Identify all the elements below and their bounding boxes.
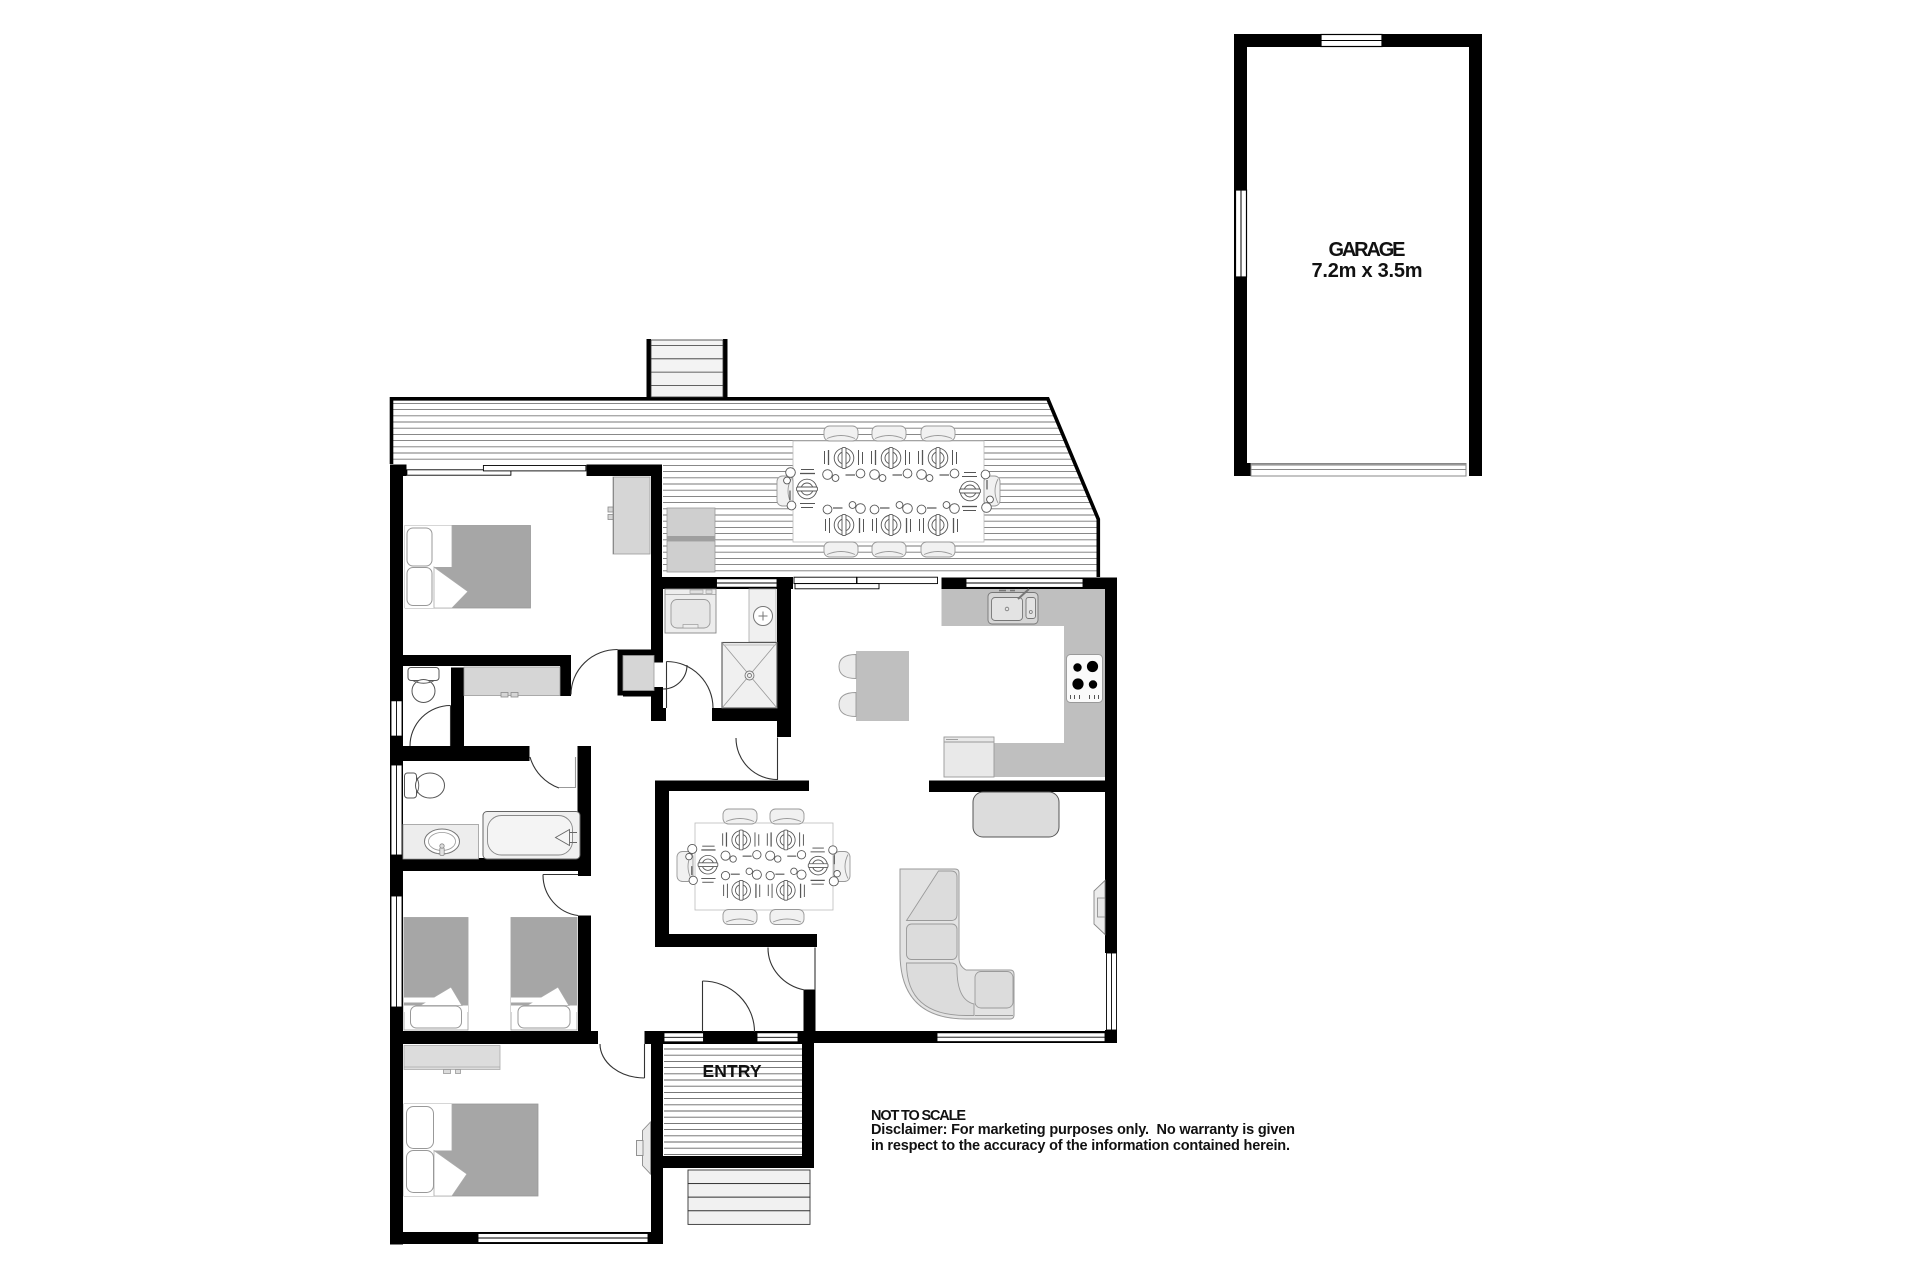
svg-text:7.2m x 3.5m: 7.2m x 3.5m <box>1312 260 1423 282</box>
svg-text:in respect to the accuracy of: in respect to the accuracy of the inform… <box>871 1138 1290 1154</box>
svg-text:GARAGE: GARAGE <box>1329 239 1406 261</box>
svg-text:Disclaimer: For marketing purp: Disclaimer: For marketing purposes only.… <box>871 1122 1295 1138</box>
svg-text:ENTRY: ENTRY <box>703 1061 762 1081</box>
